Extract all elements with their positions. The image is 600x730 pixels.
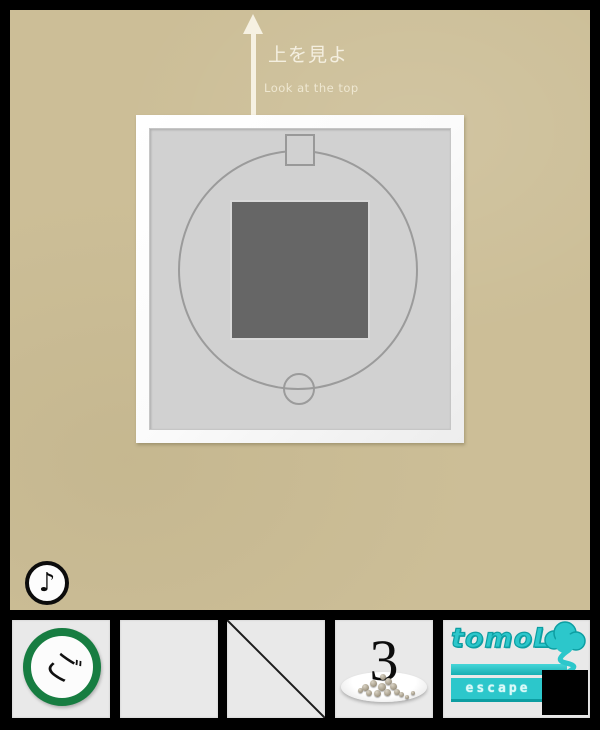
seed-bead [405,695,409,699]
seed-bead [366,690,372,696]
dial-bottom-circle[interactable] [283,373,315,405]
music-note-icon: ♪ [39,570,56,596]
seed-bead [384,689,391,696]
center-dark-square[interactable] [230,200,370,340]
seed-count: 3 [335,632,433,690]
room-view[interactable]: 上を見よ Look at the top ♪ [10,10,590,610]
green-ring-badge: ご [23,628,101,706]
inventory-slot-crossed[interactable] [227,620,325,718]
inventory-slot-plate[interactable]: 3 [335,620,433,718]
inventory-slot-logo[interactable]: tomoLa escape [443,620,590,718]
go-character: ご [40,645,85,690]
up-arrow-shaft [251,33,256,115]
black-cover-square [542,670,588,715]
sound-toggle-button[interactable]: ♪ [25,561,69,605]
inventory-slot-go-badge[interactable]: ご [12,620,110,718]
hint-text-english: Look at the top [264,81,359,95]
game-window: 上を見よ Look at the top ♪ ご 3 [0,0,600,730]
tree-icon [538,620,590,674]
wall-panel[interactable] [136,115,464,443]
seed-bead [370,680,377,687]
seed-bead [380,674,386,680]
seed-bead [399,692,404,697]
brand-subtitle: escape [451,678,545,702]
up-arrow-icon [243,14,263,34]
inventory-slot-empty[interactable] [120,620,218,718]
dial-top-square[interactable] [285,134,315,166]
seed-bead [358,688,363,693]
wall-panel-face[interactable] [150,129,450,429]
diagonal-line-icon [227,620,325,718]
seed-bead [411,691,415,695]
hint-text-japanese: 上を見よ [268,40,348,67]
seed-bead [374,690,381,697]
